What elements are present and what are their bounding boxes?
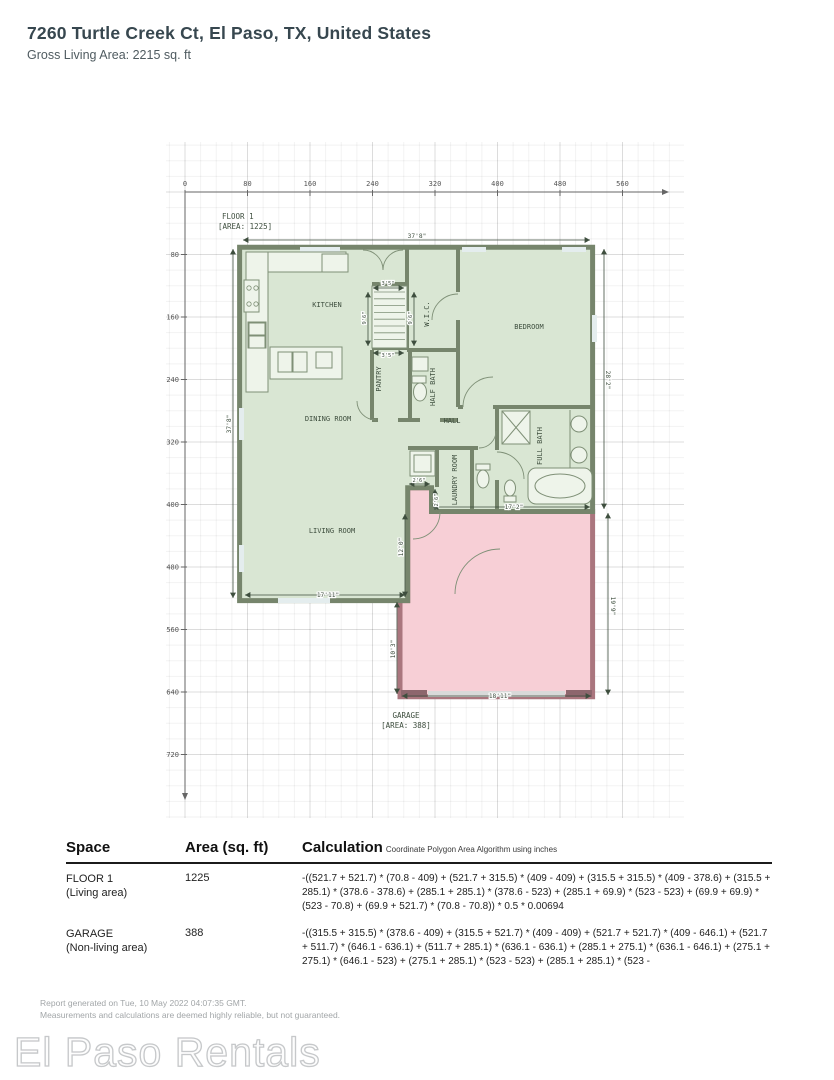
calculation-cell: -((521.7 + 521.7) * (70.8 - 409) + (521.… (302, 872, 772, 914)
bathtub-basin (535, 474, 585, 498)
refrigerator (322, 254, 348, 272)
ruler-arrow (182, 793, 188, 800)
dim-arrow (605, 513, 611, 518)
room-label-dining-room: DINING ROOM (305, 415, 351, 423)
table-header-row: Space Area (sq. ft) CalculationCoordinat… (66, 839, 772, 864)
ruler-tick-label: 320 (429, 180, 442, 188)
room-label-bedroom: BEDROOM (514, 323, 544, 331)
sink-basin (249, 323, 265, 335)
ruler-tick-label: 640 (166, 689, 179, 697)
calc-header-note: Coordinate Polygon Area Algorithm using … (386, 845, 557, 854)
dimension-label: 37'8" (408, 233, 427, 240)
table-row-garage: GARAGE (Non-living area) 388 -((315.5 + … (66, 919, 772, 974)
toilet-bowl (414, 383, 427, 401)
dimension-label: 10'3" (390, 640, 397, 659)
disclaimer-text: Measurements and calculations are deemed… (40, 1010, 340, 1020)
toilet-bowl (477, 470, 489, 488)
dimension-label: 18'11" (489, 693, 511, 700)
column-header-calculation: CalculationCoordinate Polygon Area Algor… (302, 839, 772, 856)
column-header-space: Space (66, 839, 185, 856)
report-generated-text: Report generated on Tue, 10 May 2022 04:… (40, 998, 247, 1008)
ruler-tick-label: 240 (366, 180, 379, 188)
cooktop (316, 352, 332, 368)
area-table: Space Area (sq. ft) CalculationCoordinat… (66, 839, 772, 974)
room-label-kitchen: KITCHEN (312, 301, 342, 309)
room-label-laundry-room: LAUNDRY ROOM (451, 455, 459, 506)
ruler-tick-label: 160 (166, 314, 179, 322)
ruler-tick-label: 560 (166, 626, 179, 634)
sink-basin (249, 336, 265, 348)
dimension-label: 28'2" (604, 371, 611, 390)
ruler-tick-label: 0 (183, 180, 187, 188)
ruler-tick-label: 480 (554, 180, 567, 188)
ruler-tick-label: 400 (491, 180, 504, 188)
ruler-tick-label: 560 (616, 180, 629, 188)
dimension-label: 2'6" (413, 478, 426, 484)
dimension-label: 17'2" (505, 504, 524, 511)
dimension-label: 9'6" (408, 312, 414, 325)
room-label-hall: HALL (444, 417, 461, 425)
island-sink-basin (293, 352, 307, 372)
bath-sink (571, 447, 587, 463)
floor-area-label: [AREA: 1225] (218, 222, 272, 231)
dimension-label: 3'5" (382, 281, 395, 287)
toilet-bowl (505, 480, 516, 496)
report-page: 7260 Turtle Creek Ct, El Paso, TX, Unite… (0, 0, 834, 1080)
ruler-tick-label: 720 (166, 751, 179, 759)
dimension-label: 19'9" (609, 597, 616, 616)
garage-area-label: [AREA: 388] (381, 721, 431, 730)
dim-arrow (601, 504, 607, 509)
dimension-label: 9'6" (362, 312, 368, 325)
table-row-floor1: FLOOR 1 (Living area) 1225 -((521.7 + 52… (66, 864, 772, 919)
column-header-area: Area (sq. ft) (185, 839, 302, 856)
island-sink-basin (278, 352, 292, 372)
garage-label: GARAGE (392, 711, 420, 720)
space-type: (Non-living area) (66, 941, 185, 955)
area-cell: 388 (185, 927, 302, 969)
dimension-label: 12'0" (398, 538, 405, 557)
dimension-label: 37'8" (226, 415, 233, 434)
stairs (372, 286, 407, 348)
stove (244, 280, 259, 312)
room-label-half-bath: HALF BATH (429, 368, 437, 406)
calc-header-label: Calculation (302, 839, 383, 856)
dimension-label: 17'11" (317, 592, 339, 599)
space-cell: FLOOR 1 (Living area) (66, 872, 185, 914)
dimension-label: 2'6" (434, 494, 440, 507)
ruler-tick-label: 80 (171, 251, 179, 259)
dim-arrow (585, 237, 590, 243)
ruler-tick-label: 80 (243, 180, 251, 188)
calculation-cell: -((315.5 + 315.5) * (378.6 - 409) + (315… (302, 927, 772, 969)
toilet-tank (412, 376, 426, 383)
room-label-full-bath: FULL BATH (536, 427, 544, 465)
washer (414, 455, 431, 472)
ruler-tick-label: 160 (304, 180, 317, 188)
space-name: FLOOR 1 (66, 872, 185, 886)
toilet-tank (476, 464, 490, 470)
garage-area (400, 488, 593, 697)
space-name: GARAGE (66, 927, 185, 941)
space-cell: GARAGE (Non-living area) (66, 927, 185, 969)
dimension-label: 3'5" (382, 353, 395, 359)
dim-arrow (601, 249, 607, 254)
watermark-logo: El Paso Rentals (14, 1029, 321, 1076)
ruler-tick-label: 400 (166, 501, 179, 509)
halfbath-sink (412, 357, 428, 371)
area-cell: 1225 (185, 872, 302, 914)
space-type: (Living area) (66, 886, 185, 900)
dim-arrow (230, 249, 236, 254)
room-label-living-room: LIVING ROOM (309, 527, 355, 535)
ruler-tick-label: 480 (166, 564, 179, 572)
bath-sink (571, 416, 587, 432)
dim-arrow (243, 237, 248, 243)
room-label-pantry: PANTRY (375, 366, 383, 392)
toilet-tank (504, 496, 516, 502)
ruler-tick-label: 320 (166, 439, 179, 447)
floor-label: FLOOR 1 (222, 212, 254, 221)
ruler-arrow (662, 189, 669, 195)
room-label-w-i-c-: W.I.C. (423, 301, 431, 326)
ruler-tick-label: 240 (166, 376, 179, 384)
dim-arrow (230, 593, 236, 598)
